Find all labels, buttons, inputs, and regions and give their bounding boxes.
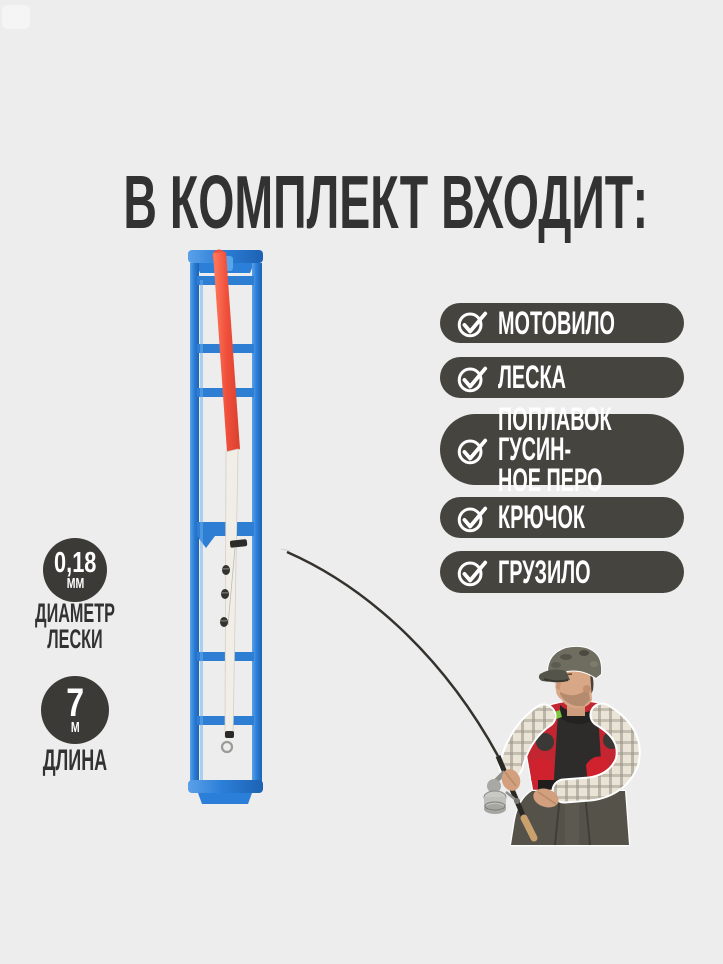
included-item-label: ЛЕСКА	[498, 362, 566, 392]
check-circle-icon	[455, 433, 489, 467]
included-item-label: ГРУЗИЛО	[498, 557, 591, 587]
included-item-label: КРЮЧОК	[498, 502, 585, 532]
line-diameter-unit: ММ	[66, 576, 84, 591]
included-item-label: ПОПЛАВОК ГУСИН- НОЕ ПЕРО	[498, 404, 613, 495]
included-item-leska: ЛЕСКА	[440, 357, 684, 398]
included-item-gruzilo: ГРУЗИЛО	[440, 551, 684, 593]
included-item-label: МОТОВИЛО	[498, 308, 615, 338]
line-length-badge: 7 М	[41, 676, 109, 744]
check-circle-icon	[455, 306, 489, 340]
line-diameter-badge: 0,18 ММ	[43, 538, 107, 602]
line-diameter-value: 0,18	[54, 550, 96, 576]
check-circle-icon	[455, 361, 489, 395]
line-length-value: 7	[66, 686, 84, 720]
corner-artifact	[2, 5, 30, 29]
product-infographic: В КОМПЛЕКТ ВХОДИТ:	[0, 0, 723, 964]
line-diameter-caption: ДИАМЕТР ЛЕСКИ	[15, 600, 135, 652]
included-item-motovilo: МОТОВИЛО	[440, 303, 684, 343]
page-title: В КОМПЛЕКТ ВХОДИТ:	[123, 162, 571, 242]
included-item-kryuchok: КРЮЧОК	[440, 497, 684, 538]
included-item-poplavok: ПОПЛАВОК ГУСИН- НОЕ ПЕРО	[440, 414, 684, 485]
check-circle-icon	[455, 555, 489, 589]
line-length-unit: М	[71, 720, 80, 735]
line-length-caption: ДЛИНА	[15, 748, 135, 774]
float-illustration	[213, 250, 248, 753]
line-winder-illustration	[180, 246, 275, 811]
check-circle-icon	[455, 501, 489, 535]
